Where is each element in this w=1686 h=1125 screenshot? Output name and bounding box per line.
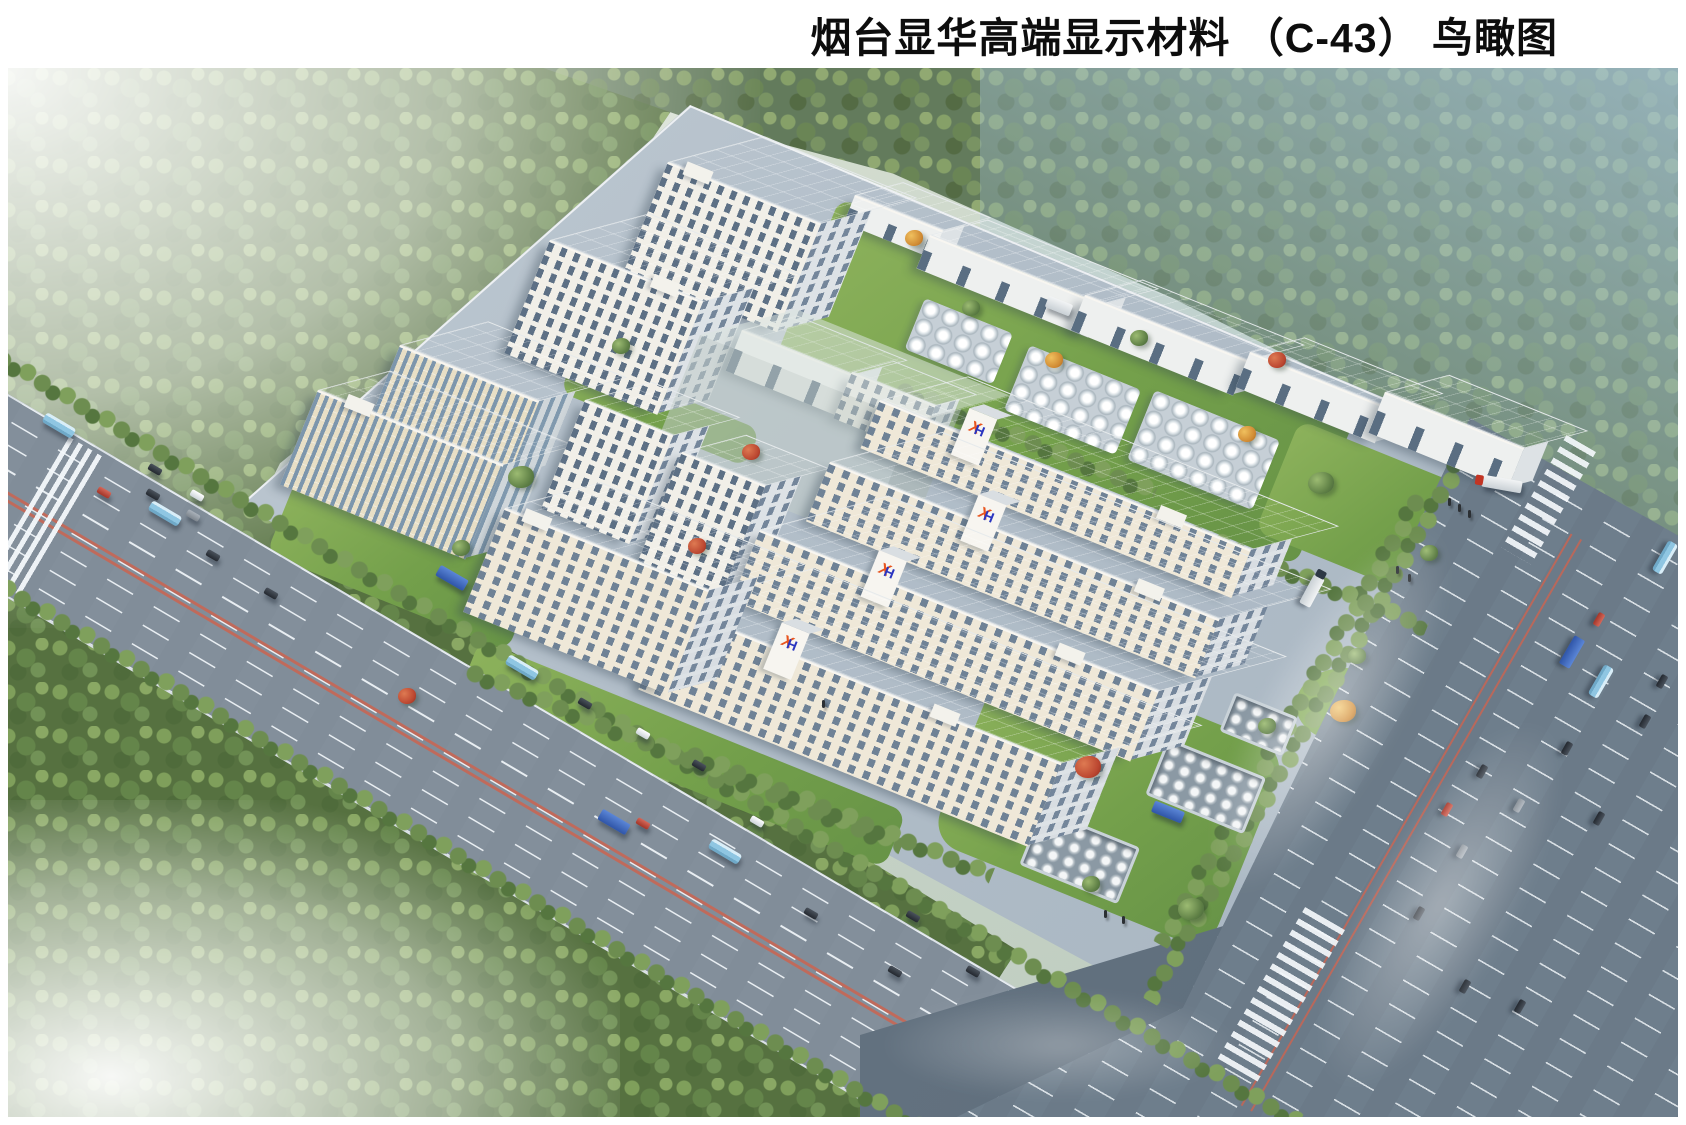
person [1122,916,1125,924]
person [1408,574,1411,582]
red-tree [742,444,760,460]
person [1104,910,1107,918]
red-tree [398,688,416,704]
orange-tree [905,230,923,246]
green-tree [452,540,470,556]
red-tree [1075,756,1101,778]
person [822,700,825,708]
crosswalk-left-road-upper [0,437,104,597]
red-tree [688,538,706,554]
green-tree [1308,472,1334,494]
frame-left [0,68,8,1125]
green-tree [508,466,534,488]
green-tree [612,338,630,354]
green-tree [1082,876,1100,892]
architectural-rendering-page: XH XH XH XH [0,0,1686,1125]
person [1396,566,1399,574]
frame-bottom [0,1117,1686,1125]
green-tree [1258,718,1276,734]
green-tree [1178,898,1204,920]
orange-tree [1045,352,1063,368]
green-tree [1130,330,1148,346]
person [1458,504,1461,512]
person [1468,510,1471,518]
aerial-site-rendering: XH XH XH XH [0,0,1686,1125]
orange-tree [1238,426,1256,442]
red-tree [1268,352,1286,368]
orange-tree [1330,700,1356,722]
green-tree [1348,648,1366,664]
truck-cab [1475,474,1485,485]
green-tree [1420,545,1438,561]
title-bar: 烟台显华高端显示材料 （C-43） 鸟瞰图 [0,0,1686,68]
page-title: 烟台显华高端显示材料 （C-43） 鸟瞰图 [810,4,1558,64]
green-tree [962,300,980,316]
person [1448,498,1451,506]
frame-right [1678,68,1686,1125]
